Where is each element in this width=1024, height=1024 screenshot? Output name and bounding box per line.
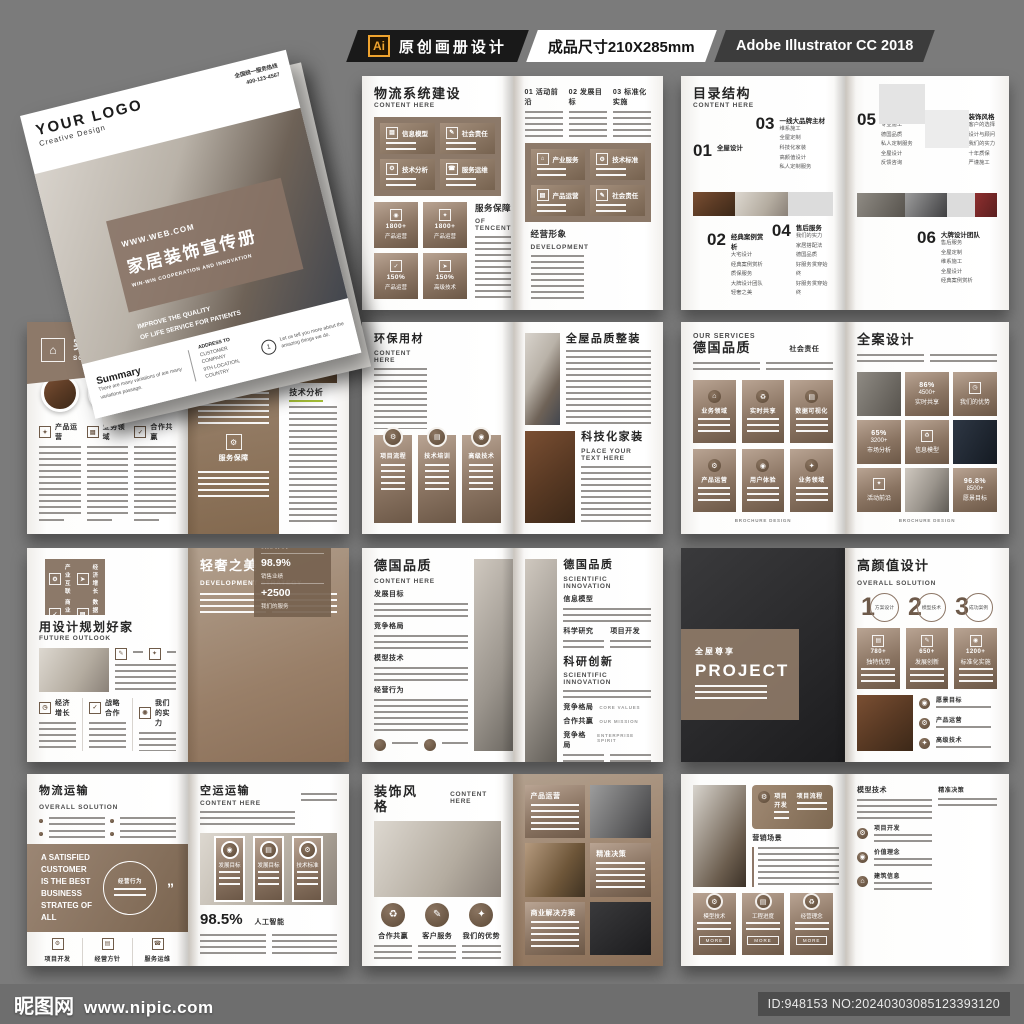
section-title: 全屋品质整装 xyxy=(566,333,651,346)
project-band: 全屋尊享 PROJECT xyxy=(681,629,799,720)
stat-tile: 150%产品运营 xyxy=(374,253,418,299)
service-card: 产品运营 xyxy=(693,449,736,512)
feature-band: 产业服务 技术标准 产品运营 社会责任 xyxy=(525,143,652,222)
photo-dining-room xyxy=(474,559,513,751)
section-title: 科研创新 xyxy=(563,656,651,669)
service-card: 实时共享 xyxy=(742,380,785,443)
quote-text: A SATISFIED CUSTOMER IS THE BEST BUSINES… xyxy=(41,852,93,924)
page-title: 物流运输 xyxy=(39,785,176,798)
sp10-right-page: 产品运营 精准决策 商业解决方案 xyxy=(513,774,664,966)
text-lines xyxy=(569,111,607,137)
sp6-left-page: 产业互联 经济增长 商业合作 数据管理 用设计规划好家 FUTURE OUTLO… xyxy=(27,548,188,762)
photo-livingroom xyxy=(693,192,735,216)
section-title: 精准决策 xyxy=(938,785,997,794)
page-title: 全案设计 xyxy=(857,333,997,348)
text-lines xyxy=(39,519,64,523)
toc-item: 01 全屋设计 xyxy=(693,142,743,159)
text-lines xyxy=(525,111,563,137)
monitor-icon xyxy=(427,427,447,447)
photo-red-room xyxy=(975,193,997,217)
text-lines xyxy=(374,368,427,429)
handshake-icon xyxy=(49,608,61,620)
pen-icon xyxy=(115,648,127,660)
spread-project: 全屋尊享 PROJECT 高颜值设计 OVERALL SOLUTION 1方案设… xyxy=(681,548,1009,762)
dev-icon xyxy=(857,828,868,839)
sp11-right-page: 模型技术 项目开发 价值理念 建筑信息 精准决策 xyxy=(845,774,1009,966)
toc-item: 02 经典案例赏析大宅设计 经典案例赏析 质保服务 大牌设计团队 轻奢之美 xyxy=(707,231,766,299)
page-subtitle: CONTENT HERE xyxy=(374,350,427,364)
design-title: 原创画册设计 xyxy=(399,36,507,57)
section-title: 经营形象 xyxy=(531,228,584,240)
step: 1方案设计 xyxy=(861,593,899,622)
image-id-label: ID:948153 NO:20240303085123393120 xyxy=(758,992,1010,1016)
target-icon xyxy=(390,209,402,221)
print-size-label: 成品尺寸210X285mm xyxy=(548,36,695,57)
pen-icon xyxy=(921,635,933,647)
quote-mark-icon xyxy=(167,880,174,896)
goal-card: 发展目标 xyxy=(214,836,245,902)
page-title: 用设计规划好家 xyxy=(39,621,176,635)
stat-card: 650+发展创新 xyxy=(906,628,949,689)
text-lines xyxy=(198,471,269,501)
cover-note: 1 Let us tell you more about the amazing… xyxy=(260,320,347,355)
step: 3成功案例 xyxy=(955,593,993,622)
photo-hallway xyxy=(525,843,586,896)
value-icon xyxy=(857,852,868,863)
target-icon xyxy=(471,427,491,447)
list-heading: 03 标准化实施 xyxy=(613,87,651,107)
bubble-card: 精准决策 xyxy=(590,843,651,896)
photo-room xyxy=(735,192,788,216)
sp9-left-page: 物流运输 OVERALL SOLUTION A SATISFIED CUSTOM… xyxy=(27,774,188,966)
sp1-heading: 物流系统建设 CONTENT HERE xyxy=(374,87,501,109)
photo-strip xyxy=(693,192,833,216)
recycle-icon xyxy=(921,430,933,442)
strip-filler xyxy=(788,192,833,216)
header-bar: Ai 原创画册设计 成品尺寸210X285mm Adobe Illustrato… xyxy=(352,30,929,62)
service-card: 用户体验 xyxy=(742,449,785,512)
spread-eco-materials: 环保用材 CONTENT HERE 项目流程 技术培训 高级技术 全屋品质整装 … xyxy=(362,322,663,534)
page-footer: BROCHURE DESIGN xyxy=(735,518,792,523)
toc-item: 04 售后服务我们的实力 家居搭配法 德国品质 好服务贯穿始终 好服务贯穿始终 xyxy=(772,222,829,299)
arrow-icon xyxy=(439,260,451,272)
text-lines xyxy=(139,732,176,751)
sp4-left-page: 环保用材 CONTENT HERE 项目流程 技术培训 高级技术 xyxy=(362,322,513,534)
info-card: 模型技术MORE xyxy=(693,893,736,955)
text-lines xyxy=(39,722,76,751)
section-title: 科技化家装 xyxy=(581,431,651,444)
pen-icon xyxy=(596,189,608,201)
advantage-tile: 我们的优势 xyxy=(953,372,997,416)
spread-project-development: 项目开发 项目流程 营销场景 模型技术MORE 工程进度MORE 经营理念MOR… xyxy=(681,774,1009,966)
text-lines xyxy=(475,236,511,299)
spread-table-of-contents: 目录结构 CONTENT HERE 01 全屋设计 03 一线大品牌主材维系施工… xyxy=(681,76,1009,310)
header-black-segment: Ai 原创画册设计 xyxy=(346,30,529,62)
photo-dark-interior: 全屋尊享 PROJECT xyxy=(681,548,845,762)
stat-number: 98.5% xyxy=(200,911,243,928)
model-tile: 信息模型 xyxy=(905,420,949,464)
section-subtitle: SCIENTIFIC INNOVATION xyxy=(563,576,651,590)
stat-tile: 150%高级技术 xyxy=(423,253,467,299)
section-subtitle: OF TENCENT xyxy=(475,218,511,232)
text-lines xyxy=(134,446,176,515)
service-card: 数据可视化 xyxy=(790,380,833,443)
page-subtitle: CONTENT HERE xyxy=(450,791,500,805)
spread-scientific-innovation: 德国品质 CONTENT HERE 发展目标 竞争格局 模型技术 经营行为 德国… xyxy=(362,548,663,762)
home-icon xyxy=(537,153,549,165)
service-card: 业务领域 xyxy=(790,449,833,512)
stat-tiles: 1800+产品运营 1800+产品运营 150%产品运营 150%高级技术 xyxy=(374,202,467,299)
feature-band: 产业互联 经济增长 商业合作 数据管理 xyxy=(45,559,105,615)
sp5-right-page: 全案设计 86%4500+实时共享 我们的优势 65%3200+市场分析 信息模… xyxy=(845,322,1009,534)
strength-icon xyxy=(139,707,151,719)
dev-icon xyxy=(758,791,770,803)
page-title: 空运运输 xyxy=(200,785,295,798)
page-title: 德国品质 xyxy=(693,341,755,356)
band-cell: 技术分析 xyxy=(380,159,435,190)
progress-icon xyxy=(755,893,772,910)
mosaic-grid: 86%4500+实时共享 我们的优势 65%3200+市场分析 信息模型 活动前… xyxy=(857,372,997,512)
service-card: 业务领域 xyxy=(693,380,736,443)
text-lines xyxy=(89,722,126,751)
cover-title-panel: WWW.WEB.COM 家居装饰宣传册 WIN-WIN COOPERATION … xyxy=(106,177,304,312)
photo-kitchen xyxy=(525,431,576,523)
info-card: 工程进度MORE xyxy=(742,893,785,955)
sp8-left-page: 全屋尊享 PROJECT xyxy=(681,548,845,762)
text-lines xyxy=(289,406,337,523)
text-lines xyxy=(87,519,112,523)
text-lines xyxy=(39,446,81,515)
section-title: 服务保障 xyxy=(475,202,511,214)
star-icon xyxy=(439,209,451,221)
question-icon xyxy=(149,648,161,660)
ops-icon xyxy=(919,718,930,729)
phone-icon xyxy=(446,163,458,175)
bubble-card: 商业解决方案 xyxy=(525,902,586,955)
adobe-illustrator-icon: Ai xyxy=(368,35,390,57)
badge-icon xyxy=(424,739,436,751)
sp7-left-page: 德国品质 CONTENT HERE 发展目标 竞争格局 模型技术 经营行为 xyxy=(362,548,513,762)
service-cards: 业务领域 实时共享 数据可视化 产品运营 用户体验 业务领域 xyxy=(693,380,833,512)
band-cell: 社会责任 xyxy=(590,185,645,216)
photo-bay-window xyxy=(374,821,501,897)
section-subtitle: PLACE YOUR TEXT HERE xyxy=(581,448,651,462)
quote-circle: 经营行为 xyxy=(103,861,157,915)
section-subtitle: DEVELOPMENT xyxy=(531,244,584,251)
activity-tile: 活动前沿 xyxy=(857,468,901,512)
text-lines xyxy=(566,350,651,425)
goal-card: 发展目标 xyxy=(253,836,284,902)
page-title: 德国品质 xyxy=(374,559,468,574)
spread-decor-style: 装饰风格 CONTENT HERE 合作共赢 客户服务 我们的优势 产品运营 精… xyxy=(362,774,663,966)
number-badge: 1 xyxy=(260,338,278,356)
sp5-left-page: OUR SERVICES 德国品质 社会责任 业务领域 实时共享 数据可视化 产… xyxy=(681,322,845,534)
service-icon xyxy=(226,434,242,450)
sp2-right-page: 05 持久耐用专业施工 德国品质 私人定制服务 全屋设计 反馈咨询 07 装饰风… xyxy=(845,76,1009,310)
handshake-icon xyxy=(134,426,146,438)
model-icon xyxy=(706,893,723,910)
stats-box: 125.000我们的实力 98.9%销售业绩 +2500我们的服务 xyxy=(254,548,331,617)
photo-livingroom xyxy=(39,648,109,692)
dev-icon xyxy=(52,938,64,950)
eyebrow: OUR SERVICES xyxy=(693,333,755,340)
data-icon xyxy=(77,608,89,620)
info-card: 经营理念MORE xyxy=(790,893,833,955)
photo-sofa xyxy=(905,193,947,217)
site-url: www.nipic.com xyxy=(84,998,214,1018)
list-heading: 01 活动前沿 xyxy=(525,87,563,107)
photo-dark-kitchen xyxy=(590,902,651,955)
stat-tile: 1800+产品运营 xyxy=(423,202,467,248)
section-subtitle: SCIENTIFIC INNOVATION xyxy=(563,672,651,686)
site-brand: 昵图网 xyxy=(14,990,74,1019)
page-subtitle: OVERALL SOLUTION xyxy=(39,804,176,811)
page-title: 目录结构 xyxy=(693,87,833,102)
check-icon xyxy=(390,260,402,272)
clock-icon xyxy=(969,382,981,394)
text-lines xyxy=(581,466,651,523)
home-icon xyxy=(41,338,65,362)
sp7-right-page: 德国品质 SCIENTIFIC INNOVATION 信息模型 科学研究 项目开… xyxy=(513,548,664,762)
sp4-right-page: 全屋品质整装 科技化家装 PLACE YOUR TEXT HERE xyxy=(513,322,664,534)
gear-icon xyxy=(383,427,403,447)
software-label: Adobe Illustrator CC 2018 xyxy=(736,38,913,54)
header-size-segment: 成品尺寸210X285mm xyxy=(526,30,716,62)
band-cell: 社会责任 xyxy=(440,123,495,154)
vision-icon xyxy=(919,698,930,709)
goal-icon xyxy=(221,841,239,859)
text-lines xyxy=(87,446,129,515)
page-title: 装饰风格 xyxy=(374,785,422,815)
feature-band: 信息模型 社会责任 技术分析 服务运维 xyxy=(374,117,501,196)
page-subtitle: FUTURE OUTLOOK xyxy=(39,635,176,642)
feature-card: 高级技术 xyxy=(462,435,500,523)
stat-tile: 1800+产品运营 xyxy=(374,202,418,248)
page-subtitle: CONTENT HERE xyxy=(693,102,833,109)
page-footer: BROCHURE DESIGN xyxy=(899,518,956,523)
photo-kitchen xyxy=(857,695,913,751)
headset-icon xyxy=(152,938,164,950)
photo-bedroom-cont xyxy=(525,333,560,425)
photo-meeting-room xyxy=(857,372,901,416)
gear-icon xyxy=(596,153,608,165)
target-icon xyxy=(970,635,982,647)
note-text: Let us tell you more about the amazing t… xyxy=(279,320,347,351)
building-icon xyxy=(857,876,868,887)
photo-dining-cont xyxy=(525,559,558,762)
photo-livingroom: 发展目标 发展目标 技术标准 xyxy=(200,833,337,905)
more-button: MORE xyxy=(796,936,828,945)
model-icon xyxy=(386,127,398,139)
page-title: 环保用材 xyxy=(374,333,427,346)
sp8-right-page: 高颜值设计 OVERALL SOLUTION 1方案设计 2模型技术 3成功案例… xyxy=(845,548,1009,762)
spread-transport: 物流运输 OVERALL SOLUTION A SATISFIED CUSTOM… xyxy=(27,774,349,966)
share-icon xyxy=(756,390,769,403)
win-icon xyxy=(381,903,405,927)
band-cell: 信息模型 xyxy=(380,123,435,154)
chart-icon xyxy=(805,390,818,403)
bubble-card: 产品运营 xyxy=(525,785,586,838)
sp2-left-page: 目录结构 CONTENT HERE 01 全屋设计 03 一线大品牌主材维系施工… xyxy=(681,76,845,310)
badge-icon xyxy=(374,739,386,751)
deco-square xyxy=(925,110,969,148)
page-subtitle: OVERALL SOLUTION xyxy=(857,580,997,587)
deco-square xyxy=(879,84,925,124)
photo-strip xyxy=(857,193,997,217)
text-lines xyxy=(613,111,651,137)
header-software-segment: Adobe Illustrator CC 2018 xyxy=(714,30,935,62)
toc-item: 06 大牌设计团队售后服务 全屋定制 维系施工 全屋设计 经典案例赏析 xyxy=(917,229,980,299)
photo-shelf xyxy=(693,785,746,887)
spread-logistics-system: 物流系统建设 CONTENT HERE 信息模型 社会责任 技术分析 服务运维 … xyxy=(362,76,663,310)
sp1-left-page: 物流系统建设 CONTENT HERE 信息模型 社会责任 技术分析 服务运维 … xyxy=(362,76,513,310)
sp6-right-page: 轻奢之美 DEVELOPMENT STRATEGY 125.000我们的实力 9… xyxy=(188,548,349,762)
photo-showroom xyxy=(857,193,905,217)
policy-icon xyxy=(102,938,114,950)
photo-night-room xyxy=(953,420,997,464)
page-title: 高颜值设计 xyxy=(857,559,997,574)
spread-german-quality: OUR SERVICES 德国品质 社会责任 业务领域 实时共享 数据可视化 产… xyxy=(681,322,1009,534)
text-lines xyxy=(115,664,176,692)
side-label: 社会责任 xyxy=(789,344,819,354)
section-title: 技术分析 xyxy=(289,387,323,402)
chart-icon xyxy=(872,635,884,647)
band-cell: 产业服务 xyxy=(531,149,586,180)
monitor-icon xyxy=(260,841,278,859)
text-lines xyxy=(752,847,839,887)
advantage-icon xyxy=(469,903,493,927)
bulb-icon xyxy=(39,426,51,438)
service-icon xyxy=(425,903,449,927)
text-lines xyxy=(531,255,584,299)
home-icon xyxy=(708,390,721,403)
more-button: MORE xyxy=(699,936,731,945)
stat-tile: 96.8%8500+愿景目标 xyxy=(953,468,997,512)
gear-icon xyxy=(708,459,721,472)
band-cell: 技术标准 xyxy=(590,149,645,180)
feature-card: 技术培训 xyxy=(418,435,456,523)
cooperation-icon xyxy=(89,702,101,714)
page-subtitle: CONTENT HERE xyxy=(374,102,501,109)
stat-label: 人工智能 xyxy=(255,917,285,927)
standard-icon xyxy=(299,841,317,859)
goal-card: 技术标准 xyxy=(292,836,323,902)
page-subtitle: CONTENT HERE xyxy=(374,578,468,585)
grid-icon xyxy=(537,189,549,201)
photo-white-sofa xyxy=(590,785,651,838)
divider xyxy=(188,350,197,381)
sp2-heading: 目录结构 CONTENT HERE xyxy=(693,87,833,109)
feature-card: 项目流程 xyxy=(374,435,412,523)
sp9-right-page: 空运运输 CONTENT HERE 发展目标 发展目标 技术标准 98.5% 人… xyxy=(188,774,349,966)
section-title: 德国品质 xyxy=(563,559,651,572)
sp1-right-page: 01 活动前沿 02 发展目标 03 标准化实施 产业服务 技术标准 产品运营 … xyxy=(513,76,664,310)
watermark-bar: 昵图网 www.nipic.com ID:948153 NO:202403030… xyxy=(0,984,1024,1024)
tech-icon xyxy=(919,738,930,749)
dev-band: 项目开发 项目流程 xyxy=(752,785,833,829)
quote-band: A SATISFIED CUSTOMER IS THE BEST BUSINES… xyxy=(27,844,188,932)
more-button: MORE xyxy=(747,936,779,945)
step: 2模型技术 xyxy=(908,593,946,622)
toc-item: 03 一线大品牌主材维系施工 全屋定制 科技化家装 高颜值设计 私人定制服务 xyxy=(756,115,825,173)
star-icon xyxy=(805,459,818,472)
band-cell: 产品运营 xyxy=(531,185,586,216)
stat-card: 780+独特优势 xyxy=(857,628,900,689)
gear-icon xyxy=(49,573,61,585)
text-lines xyxy=(134,519,159,523)
stat-tile: 65%3200+市场分析 xyxy=(857,420,901,464)
stat-card: 1200+标准化实施 xyxy=(954,628,997,689)
growth-icon xyxy=(77,573,89,585)
stat-tile: 86%4500+实时共享 xyxy=(905,372,949,416)
concept-icon xyxy=(803,893,820,910)
gear-icon xyxy=(386,163,398,175)
section-title: 营销场景 xyxy=(752,833,833,843)
list-heading: 02 发展目标 xyxy=(569,87,607,107)
activity-icon xyxy=(873,478,885,490)
doc-icon xyxy=(87,426,99,438)
page-subtitle: CONTENT HERE xyxy=(200,800,295,807)
pen-icon xyxy=(446,127,458,139)
bullet-lines xyxy=(39,817,176,838)
strip-filler xyxy=(947,193,975,217)
sp10-left-page: 装饰风格 CONTENT HERE 合作共赢 客户服务 我们的优势 xyxy=(362,774,513,966)
page-title: 物流系统建设 xyxy=(374,87,501,102)
sp11-left-page: 项目开发 项目流程 营销场景 模型技术MORE 工程进度MORE 经营理念MOR… xyxy=(681,774,845,966)
section-title: 模型技术 xyxy=(857,785,932,795)
growth-icon xyxy=(39,702,51,714)
band-cell: 服务运维 xyxy=(440,159,495,190)
photo-dining-room xyxy=(905,468,949,512)
user-icon xyxy=(756,459,769,472)
spread-design-planning: 产业互联 经济增长 商业合作 数据管理 用设计规划好家 FUTURE OUTLO… xyxy=(27,548,349,762)
